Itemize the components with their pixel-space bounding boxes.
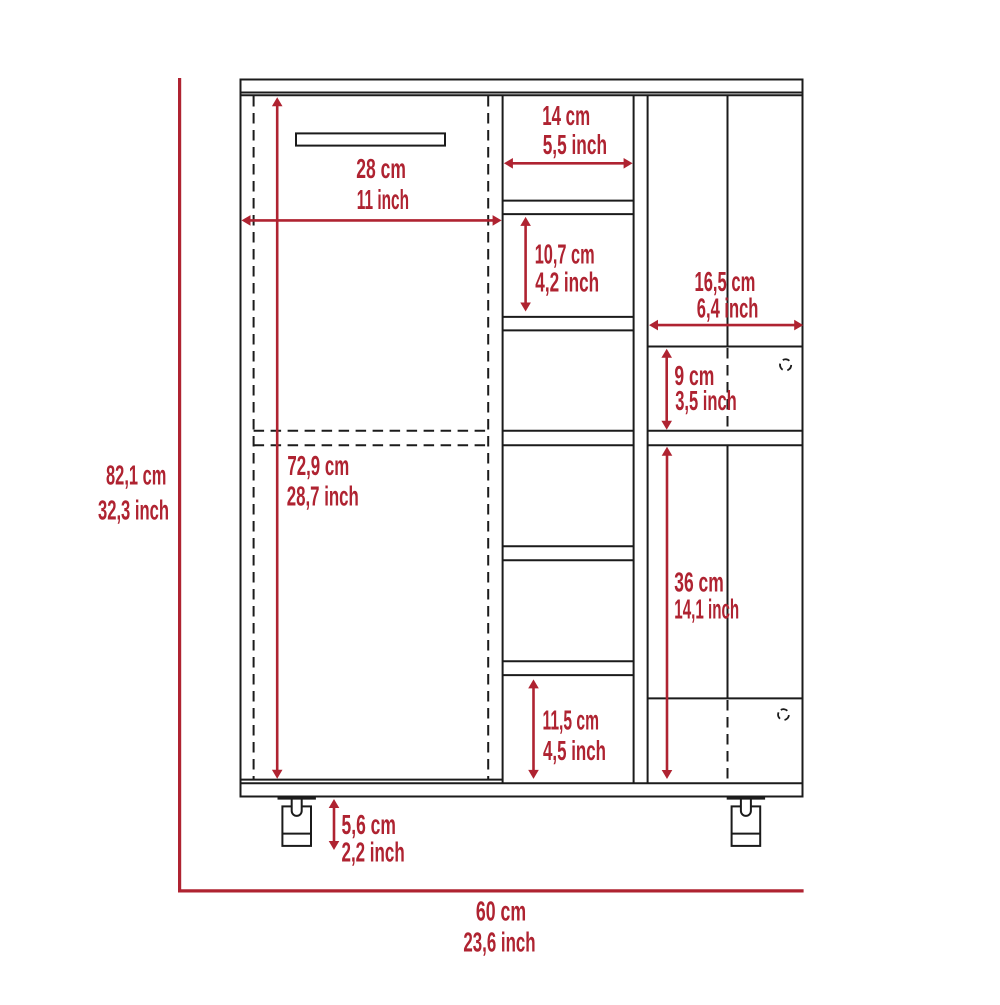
svg-text:2,2 inch: 2,2 inch [342,837,405,868]
svg-text:3,5 inch: 3,5 inch [675,385,737,416]
svg-text:28,7 inch: 28,7 inch [287,480,359,511]
svg-text:14 cm: 14 cm [542,100,590,131]
svg-text:4,2 inch: 4,2 inch [535,267,599,298]
svg-text:60 cm: 60 cm [476,896,526,927]
svg-text:5,6 cm: 5,6 cm [342,809,396,840]
svg-text:28 cm: 28 cm [356,153,406,184]
svg-text:72,9 cm: 72,9 cm [287,450,349,481]
svg-text:6,4 inch: 6,4 inch [697,293,759,324]
svg-text:5,5 inch: 5,5 inch [543,129,607,160]
svg-text:4,5 inch: 4,5 inch [543,735,606,766]
svg-text:82,1 cm: 82,1 cm [106,460,166,491]
svg-text:11 inch: 11 inch [357,184,409,215]
svg-text:14,1 inch: 14,1 inch [674,593,739,624]
svg-text:11,5 cm: 11,5 cm [543,705,600,736]
svg-text:23,6 inch: 23,6 inch [463,926,535,957]
svg-text:10,7 cm: 10,7 cm [535,239,595,270]
svg-text:32,3 inch: 32,3 inch [98,495,169,526]
